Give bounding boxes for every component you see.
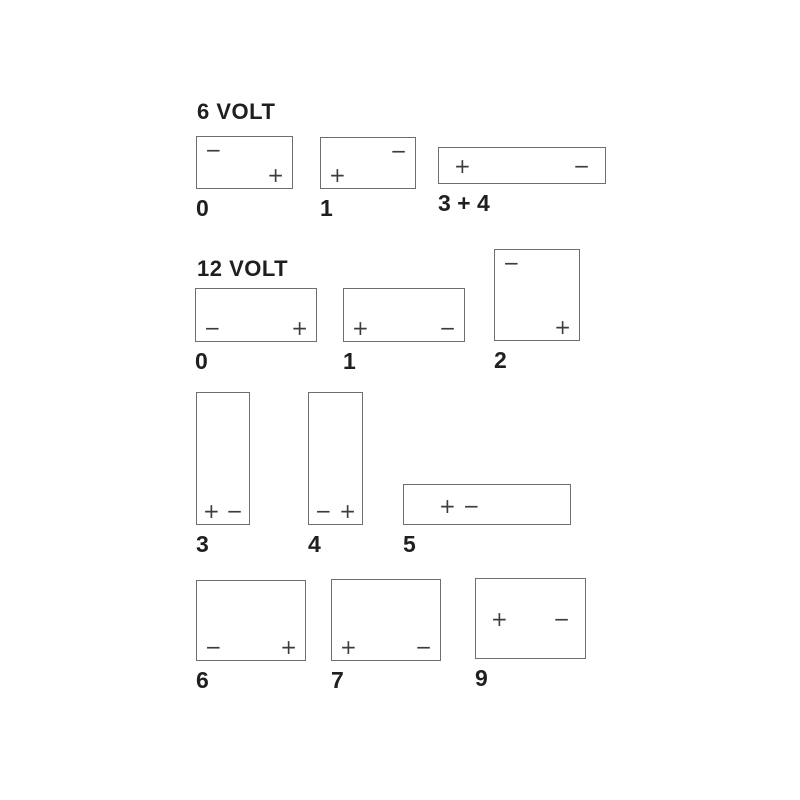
plus-terminal: + bbox=[339, 502, 356, 520]
battery-outline: + − bbox=[196, 392, 250, 525]
plus-terminal: + bbox=[291, 319, 308, 337]
plus-terminal: + bbox=[554, 318, 571, 336]
battery-label: 1 bbox=[343, 348, 465, 375]
minus-terminal: − bbox=[439, 319, 456, 337]
plus-terminal: + bbox=[454, 157, 471, 175]
battery-layout-12v-6: − + 6 bbox=[196, 580, 306, 694]
battery-label: 2 bbox=[494, 347, 580, 374]
battery-outline: − + bbox=[196, 136, 293, 189]
minus-terminal: − bbox=[205, 141, 222, 159]
plus-terminal: + bbox=[340, 638, 357, 656]
battery-label: 0 bbox=[196, 195, 293, 222]
plus-terminal: + bbox=[280, 638, 297, 656]
battery-layout-6v-0: − + 0 bbox=[196, 136, 293, 222]
battery-outline: + − bbox=[403, 484, 571, 525]
section-heading-6-volt: 6 VOLT bbox=[197, 99, 275, 125]
plus-terminal: + bbox=[203, 502, 220, 520]
battery-outline: + − bbox=[475, 578, 586, 659]
section-heading-12-volt: 12 VOLT bbox=[197, 256, 288, 282]
plus-terminal: + bbox=[491, 610, 508, 628]
battery-label: 6 bbox=[196, 667, 306, 694]
battery-layout-12v-5: + − 5 bbox=[403, 484, 571, 558]
battery-layout-12v-2: − + 2 bbox=[494, 249, 580, 374]
minus-terminal: − bbox=[390, 142, 407, 160]
minus-terminal: − bbox=[205, 638, 222, 656]
minus-terminal: − bbox=[503, 254, 520, 272]
battery-layout-6v-3-plus-4: + − 3 + 4 bbox=[438, 147, 606, 217]
battery-label: 0 bbox=[195, 348, 317, 375]
plus-terminal: + bbox=[329, 166, 346, 184]
battery-label: 3 bbox=[196, 531, 250, 558]
battery-label: 9 bbox=[475, 665, 586, 692]
battery-layout-12v-1: + − 1 bbox=[343, 288, 465, 375]
battery-outline: − + bbox=[195, 288, 317, 342]
minus-terminal: − bbox=[415, 638, 432, 656]
battery-layout-6v-1: − + 1 bbox=[320, 137, 416, 222]
battery-outline: − + bbox=[494, 249, 580, 341]
battery-outline: + − bbox=[331, 579, 441, 661]
battery-layout-12v-4: − + 4 bbox=[308, 392, 363, 558]
plus-terminal: + bbox=[267, 166, 284, 184]
battery-outline: + − bbox=[343, 288, 465, 342]
battery-outline: − + bbox=[320, 137, 416, 189]
battery-layout-12v-0: − + 0 bbox=[195, 288, 317, 375]
battery-terminal-layout-diagram: 6 VOLT − + 0 − + 1 + − 3 + 4 12 VOLT − +… bbox=[0, 0, 800, 800]
battery-layout-12v-3: + − 3 bbox=[196, 392, 250, 558]
battery-label: 7 bbox=[331, 667, 441, 694]
battery-outline: − + bbox=[196, 580, 306, 661]
battery-label: 5 bbox=[403, 531, 571, 558]
battery-outline: + − bbox=[438, 147, 606, 184]
battery-label: 1 bbox=[320, 195, 416, 222]
minus-terminal: − bbox=[573, 157, 590, 175]
battery-outline: − + bbox=[308, 392, 363, 525]
minus-terminal: − bbox=[463, 497, 480, 515]
minus-terminal: − bbox=[226, 502, 243, 520]
minus-terminal: − bbox=[553, 610, 570, 628]
plus-terminal: + bbox=[439, 497, 456, 515]
minus-terminal: − bbox=[315, 502, 332, 520]
battery-label: 3 + 4 bbox=[438, 190, 606, 217]
minus-terminal: − bbox=[204, 319, 221, 337]
battery-layout-12v-7: + − 7 bbox=[331, 579, 441, 694]
plus-terminal: + bbox=[352, 319, 369, 337]
battery-layout-12v-9: + − 9 bbox=[475, 578, 586, 692]
battery-label: 4 bbox=[308, 531, 363, 558]
